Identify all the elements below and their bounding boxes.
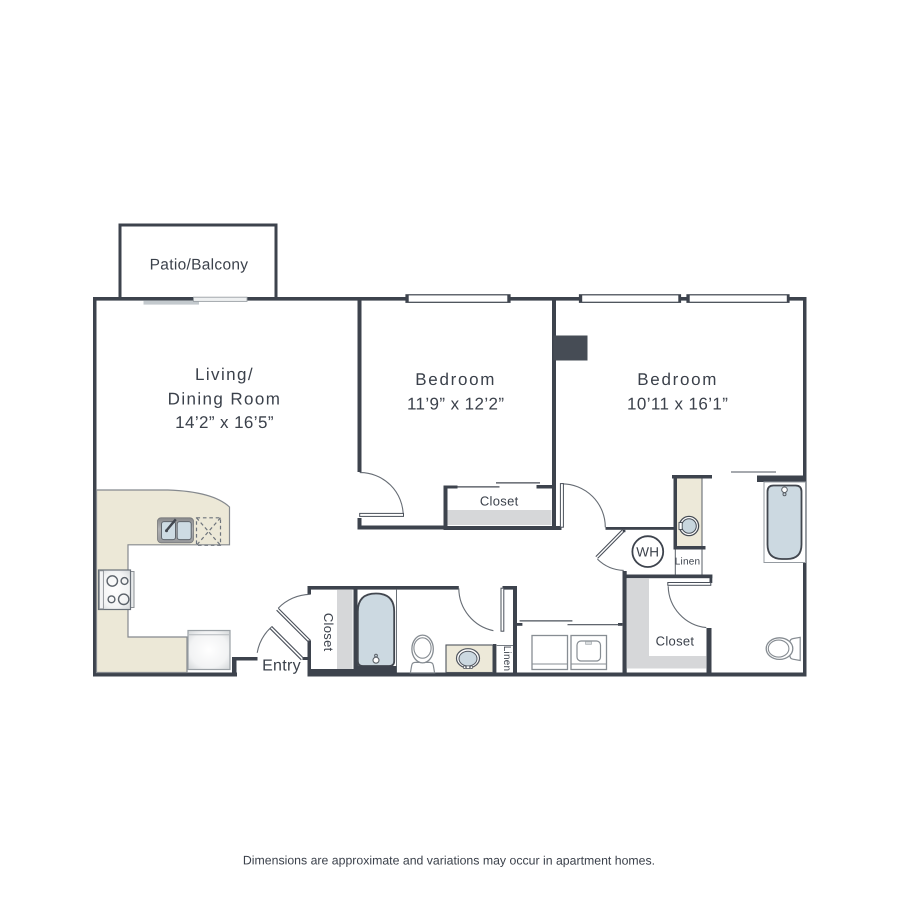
svg-text:WH: WH: [636, 544, 659, 559]
svg-text:11’9” x 12’2”: 11’9” x 12’2”: [407, 394, 505, 413]
svg-text:Dining Room: Dining Room: [168, 389, 282, 408]
svg-text:14’2” x 16’5”: 14’2” x 16’5”: [175, 413, 274, 432]
svg-text:Closet: Closet: [656, 633, 695, 648]
svg-text:Linen: Linen: [675, 556, 700, 567]
svg-text:Closet: Closet: [480, 493, 519, 508]
svg-text:Dimensions are approximate and: Dimensions are approximate and variation…: [243, 853, 655, 867]
svg-text:Bedroom: Bedroom: [637, 370, 718, 389]
svg-text:Bedroom: Bedroom: [415, 370, 496, 389]
svg-text:Entry: Entry: [262, 657, 301, 674]
svg-text:Living/: Living/: [195, 365, 254, 384]
svg-text:Linen: Linen: [501, 646, 512, 671]
svg-text:Closet: Closet: [321, 613, 336, 652]
svg-text:10’11 x 16’1”: 10’11 x 16’1”: [627, 394, 728, 413]
svg-text:Patio/Balcony: Patio/Balcony: [150, 256, 249, 273]
